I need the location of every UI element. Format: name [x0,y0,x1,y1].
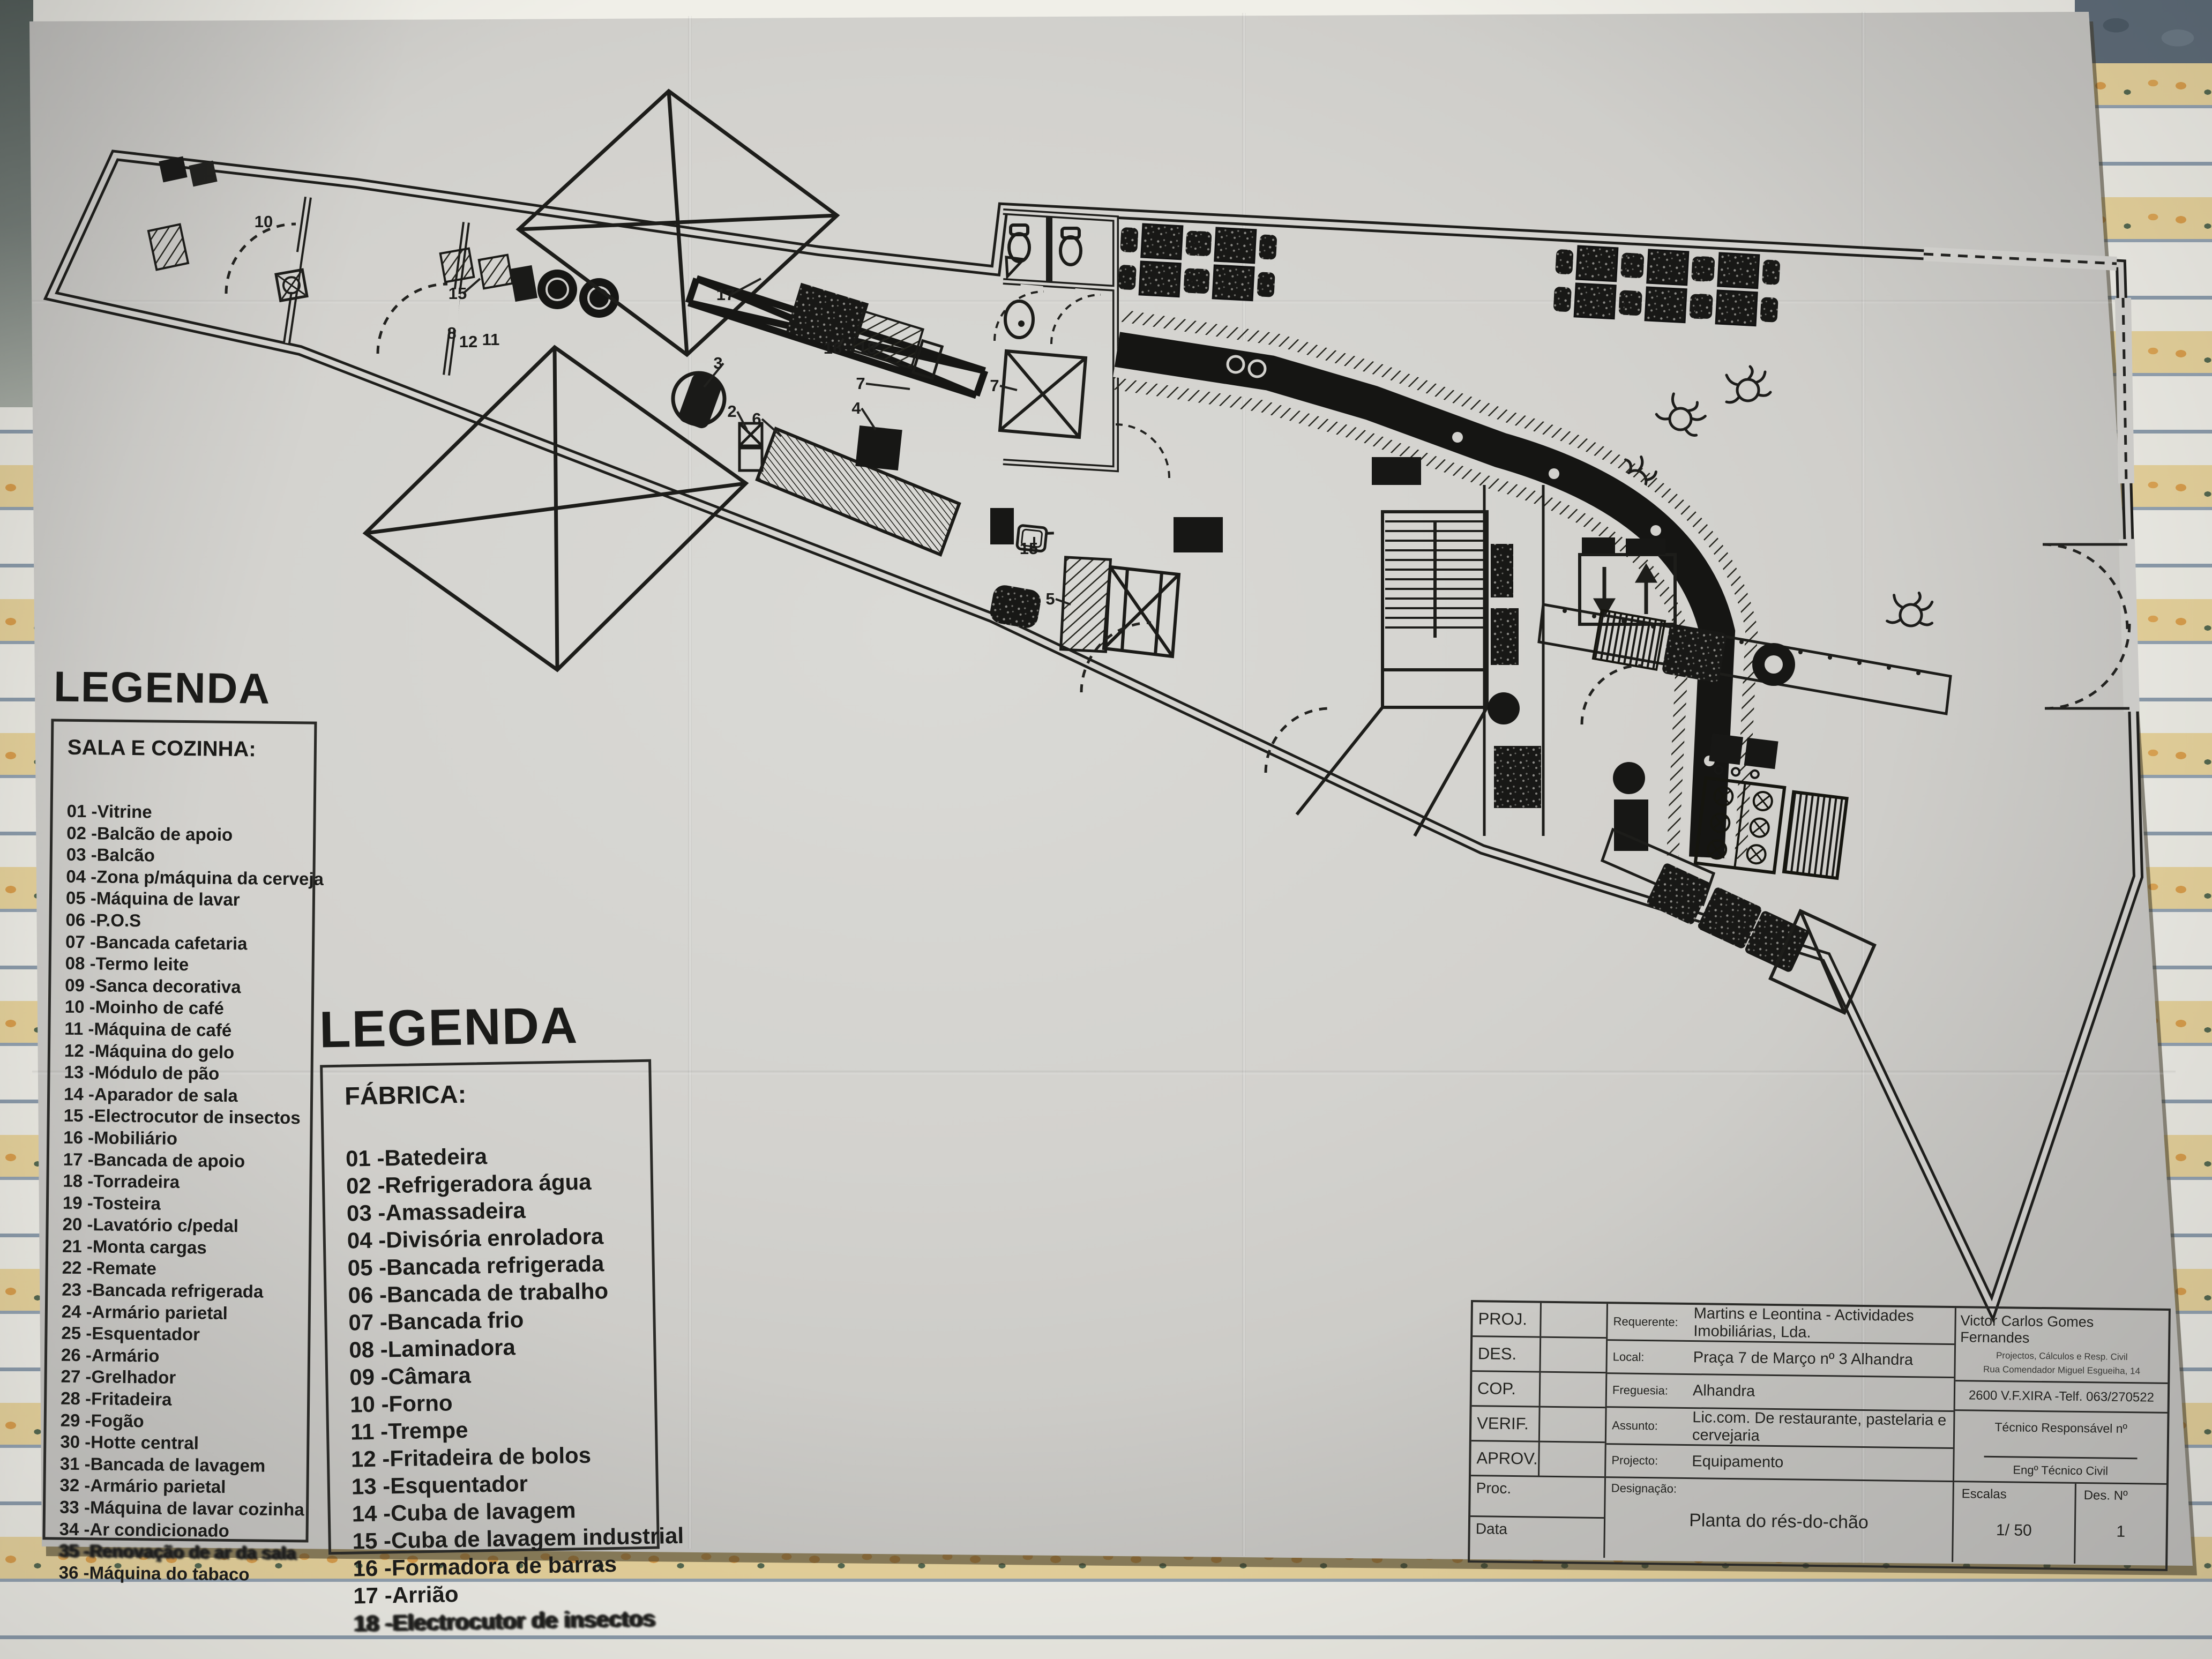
legend-item: 10 -Moinho de café [65,996,301,1020]
proc-data-column: Proc. Data [1470,1476,1606,1558]
legend-item: 08 -Termo leite [65,953,301,977]
engineer-column: Victor Carlos Gomes Fernandes Projectos,… [1954,1308,2169,1483]
legend-item: 19 -Tosteira [63,1192,298,1216]
field-label: Assunto: [1612,1418,1692,1433]
field-value: Alhandra [1693,1382,1755,1401]
legend-item: 06 -P.O.S [65,909,301,933]
technician-label: Técnico Responsável nº [1994,1420,2127,1436]
legend-item: 17 -Bancada de apoio [63,1148,299,1172]
legend-items: 01 -Vitrine02 -Balcão de apoio03 -Balcão… [59,801,303,1586]
drawing-number-value: 1 [2076,1522,2166,1542]
signature-line [1984,1456,2137,1459]
legend-box: FÁBRICA: 01 -Batedeira02 -Refrigeradora … [320,1059,660,1555]
legend-item: 22 -Remate [62,1257,298,1281]
legend-item: 12 -Máquina do gelo [64,1040,300,1064]
engineer-line: 2600 V.F.XIRA -Telf. 063/270522 [1955,1381,2168,1414]
legend-item: 11 -Máquina de café [64,1018,300,1042]
legend-item: 36 -Máquina do tabaco [59,1561,295,1586]
field-label: Freguesia: [1612,1383,1693,1398]
legend-item: 28 -Fritadeira [61,1388,296,1412]
legend-item: 05 -Máquina de lavar [66,887,302,911]
legend-item: 16 -Formadora de barras [353,1550,647,1582]
equipment-number-label: 12 [459,332,477,351]
legend-item: 34 -Ar condicionado [59,1518,295,1542]
legend-item: 27 -Grelhador [61,1366,296,1390]
legend-item: 03 -Balcão [66,844,302,868]
legend-section-title: FÁBRICA: [345,1076,639,1111]
legend-box: SALA E COZINHA: 01 -Vitrine02 -Balcão de… [42,719,317,1542]
equipment-number-label: 10 [255,212,273,231]
stairs [1297,512,1487,836]
equipment-number-label: 6 [752,409,761,428]
legend-item: 30 -Hotte central [60,1431,296,1455]
legend-fabrica: LEGENDA FÁBRICA: 01 -Batedeira02 -Refrig… [319,995,661,1555]
equipment-number-label: 2 [727,402,736,421]
scale-cell: Escalas 1/ 50 [1953,1482,2076,1564]
equipment-number-label: 18 [858,339,876,357]
equipment-number-label: 16 [824,339,842,357]
equipment-number-label: 7 [990,376,999,395]
legend-item: 26 -Armário [61,1344,297,1369]
approval-label: COP. [1472,1372,1541,1406]
proc-label: Proc. [1470,1476,1604,1519]
equipment-number-label: 4 [851,399,861,417]
approval-label: APROV. [1471,1441,1540,1476]
field-value: Martins e Leontina - Actividades Imobili… [1693,1305,1949,1343]
equipment-number-label: 7 [856,374,865,393]
legend-item: 16 -Mobiliário [63,1127,299,1151]
equipment-number-label: 15 [1020,539,1038,558]
label-leader-line [866,384,910,389]
technician-title: Engº Técnico Civil [1954,1462,2166,1479]
drawing-number-label: Des. Nº [2076,1484,2166,1504]
legend-item: 25 -Esquentador [61,1322,297,1347]
plan-number-labels: 108121115173261618747155 [255,212,1071,608]
field-label: Requerente: [1613,1314,1693,1329]
legend-item: 29 -Fogão [61,1409,296,1433]
equipment-number-label: 11 [482,330,500,349]
designation-cell: Designação: Planta do rés-do-chão [1605,1478,1954,1562]
drawing-title: Planta do rés-do-chão [1605,1509,1952,1534]
legend-item: 20 -Lavatório c/pedal [62,1214,298,1238]
legend-item: 23 -Bancada refrigerada [62,1279,297,1303]
legend-item: 04 -Zona p/máquina da cerveja [66,866,302,890]
equipment-number-label: 8 [447,324,456,342]
legend-item: 14 -Aparador de sala [64,1083,300,1107]
data-label: Data [1470,1517,1604,1558]
legend-item: 18 -Torradeira [63,1170,298,1194]
field-value: Praça 7 de Março nº 3 Alhandra [1693,1349,1914,1369]
responsible-technician: Técnico Responsável nº Engº Técnico Civi… [1954,1411,2168,1483]
title-block: PROJ. DES. COP. VERIF. APROV. Requerente… [1468,1300,2171,1571]
legend-sala-e-cozinha: LEGENDA SALA E COZINHA: 01 -Vitrine02 -B… [42,662,319,1542]
scale-value: 1/ 50 [1954,1521,2074,1541]
approval-column: PROJ. DES. COP. VERIF. APROV. [1471,1302,1608,1476]
legend-section-title: SALA E COZINHA: [68,736,303,763]
equipment-number-label: 15 [449,284,467,303]
photo-of-floor-plan: 108121115173261618747155 LEGENDA SALA E … [0,0,2212,1659]
legend-title: LEGENDA [319,995,652,1060]
legend-item: 01 -Vitrine [66,801,302,825]
legend-item: 18 -Electrocutor de insectos [354,1604,648,1637]
legend-items: 01 -Batedeira02 -Refrigeradora água03 -A… [346,1140,648,1636]
equipment-number-label: 5 [1045,589,1055,608]
approval-label: VERIF. [1471,1407,1541,1441]
equipment-number-label: 3 [713,354,722,372]
legend-item: 02 -Balcão de apoio [66,822,302,846]
legend-item: 07 -Bancada cafetaria [65,931,301,955]
field-label: Local: [1613,1350,1693,1365]
engineer-line: Rua Comendador Miguel Esgueiha, 14 [1955,1361,2168,1384]
field-label: Projecto: [1611,1454,1692,1469]
legend-title: LEGENDA [54,662,320,714]
field-value: Lic.com. De restaurante, pastelaria e ce… [1692,1409,1948,1447]
designation-label: Designação: [1606,1478,1953,1499]
label-leader-line [762,419,781,436]
legend-item: 09 -Sanca decorativa [65,974,301,998]
project-fields: Requerente: Martins e Leontina - Activid… [1606,1304,1956,1481]
legend-item: 31 -Bancada de lavagem [60,1453,296,1477]
entrance-doors [2043,544,2129,708]
equipment-number-label: 17 [716,285,735,304]
legend-item: 33 -Máquina de lavar cozinha [59,1497,295,1521]
field-value: Equipamento [1692,1453,1783,1471]
wing-equipment [148,91,1330,773]
legend-item: 06 -Bancada de trabalho [348,1276,642,1309]
legend-item: 24 -Armário parietal [62,1301,297,1325]
legend-item: 13 -Módulo de pão [64,1062,300,1086]
legend-item: 32 -Armário parietal [59,1475,295,1499]
legend-item: 35 -Renovação de ar da sala [59,1540,295,1564]
scale-label: Escalas [1954,1482,2075,1503]
approval-label: DES. [1472,1337,1541,1371]
drawing-number-cell: Des. Nº 1 [2075,1484,2166,1565]
approval-label: PROJ. [1473,1302,1542,1336]
legend-item: 15 -Electrocutor de insectos [64,1105,300,1129]
engineer-name: Victor Carlos Gomes Fernandes [1956,1308,2169,1349]
legend-item: 21 -Monta cargas [62,1236,298,1260]
